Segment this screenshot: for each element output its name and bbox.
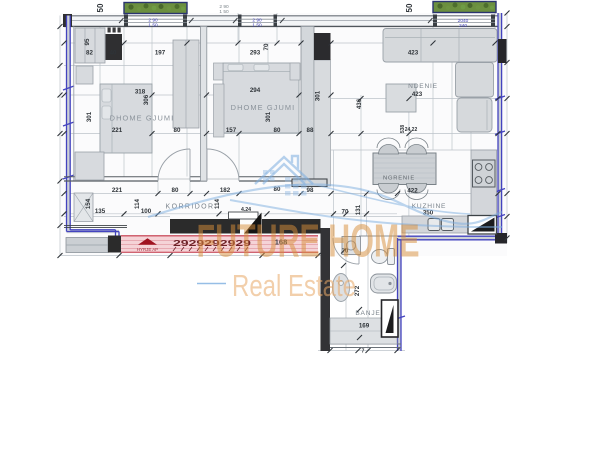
svg-text:135: 135 [95,208,106,215]
svg-text:318: 318 [135,89,146,96]
svg-text:NDENIE: NDENIE [408,83,438,90]
svg-text:88: 88 [307,127,314,134]
svg-text:FUTURE HOME: FUTURE HOME [197,215,420,267]
svg-text:154: 154 [85,198,92,209]
svg-text:182: 182 [220,187,231,194]
svg-text:98: 98 [307,187,314,194]
svg-text:DHOME GJUMI: DHOME GJUMI [110,114,175,123]
svg-text:301: 301 [315,90,322,101]
svg-text:80: 80 [172,187,179,194]
svg-text:BANJE: BANJE [355,310,380,317]
svg-text:Real Estate: Real Estate [232,268,356,303]
svg-text:80: 80 [174,127,181,134]
svg-text:DHOME GJUMI: DHOME GJUMI [231,103,296,112]
svg-text:306: 306 [143,94,150,105]
svg-text:423: 423 [408,50,419,57]
svg-text:HYRJE AP: HYRJE AP [137,247,158,252]
svg-text:NGRENIE: NGRENIE [383,176,415,182]
svg-text:301: 301 [86,111,93,122]
svg-text:240: 240 [459,23,467,29]
svg-text:221: 221 [112,187,123,194]
svg-text:436: 436 [356,98,363,109]
svg-text:KUZHINE: KUZHINE [412,203,447,210]
svg-text:114: 114 [214,198,221,209]
svg-text:50: 50 [96,3,105,12]
svg-text:293: 293 [250,50,261,57]
svg-text:40: 40 [110,50,117,57]
svg-text:50: 50 [405,3,414,12]
svg-text:82: 82 [86,50,93,57]
svg-text:80: 80 [274,127,281,134]
svg-text:24.22: 24.22 [405,127,418,133]
svg-text:294: 294 [250,87,261,94]
svg-text:197: 197 [155,50,166,57]
svg-text:423: 423 [412,91,423,98]
svg-text:1 50: 1 50 [252,23,262,29]
svg-text:7: 7 [362,349,365,355]
svg-text:169: 169 [359,323,370,330]
svg-text:4.24: 4.24 [241,207,251,213]
svg-text:422: 422 [407,188,418,195]
svg-text:157: 157 [226,127,237,134]
svg-text:301: 301 [265,111,272,122]
svg-text:100: 100 [141,208,152,215]
svg-text:70: 70 [263,43,270,50]
svg-text:95: 95 [84,38,91,45]
svg-text:1 50: 1 50 [219,9,229,15]
svg-text:221: 221 [112,127,123,134]
svg-text:1 50: 1 50 [148,23,158,29]
